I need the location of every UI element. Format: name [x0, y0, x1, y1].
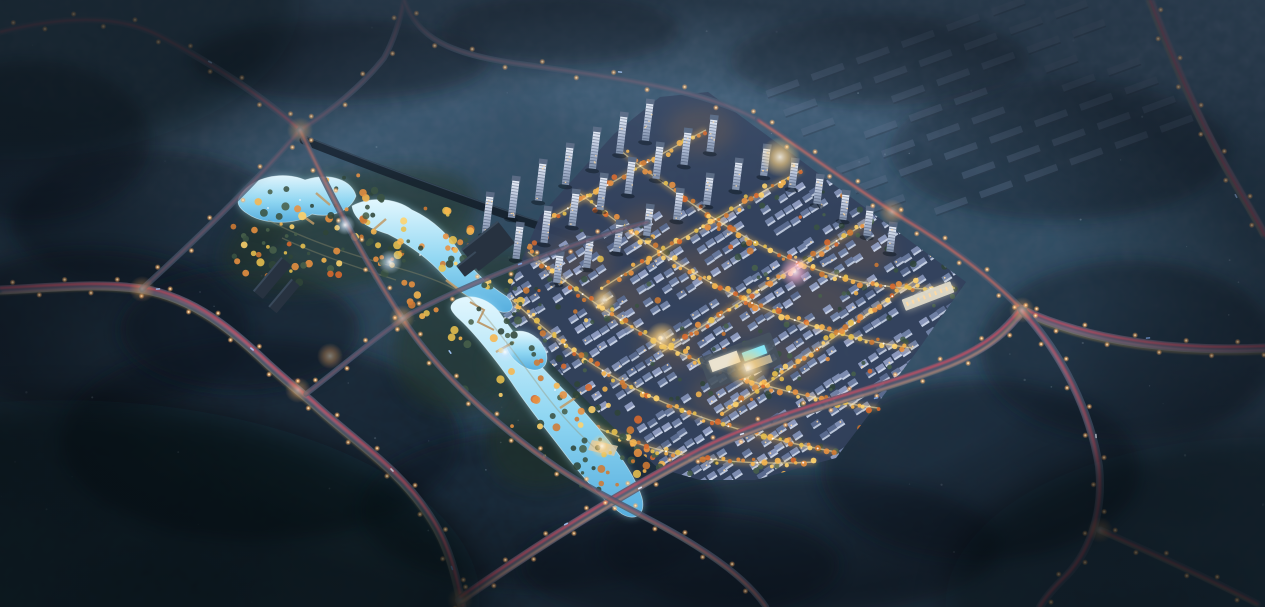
atmosphere	[0, 0, 1265, 607]
scene-svg	[0, 0, 1265, 607]
aerial-night-rendering	[0, 0, 1265, 607]
